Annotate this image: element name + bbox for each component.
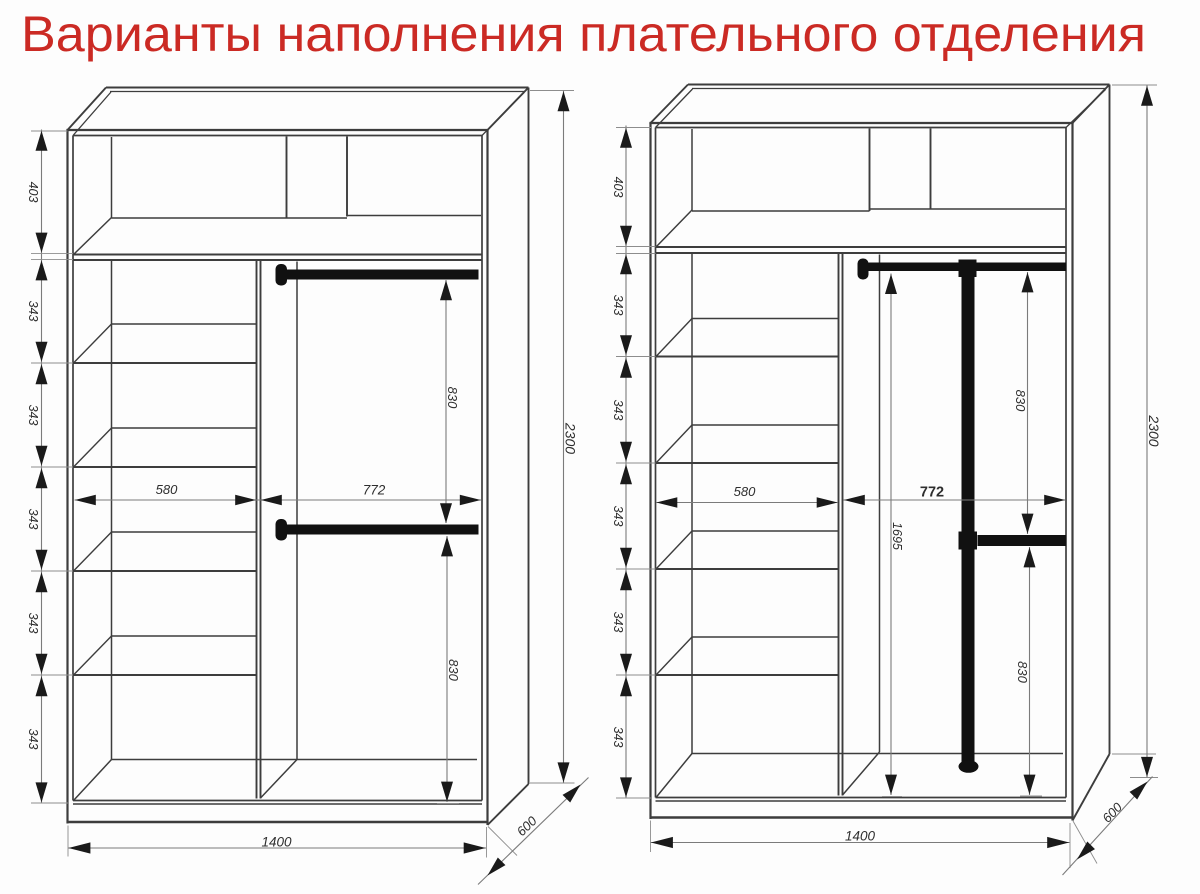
svg-text:1695: 1695 [890, 522, 904, 550]
svg-text:580: 580 [156, 482, 178, 497]
svg-text:1400: 1400 [845, 828, 876, 843]
svg-text:Варианты наполнения плательног: Варианты наполнения плательного отделени… [21, 6, 1146, 62]
svg-text:772: 772 [920, 485, 944, 501]
svg-text:343: 343 [611, 727, 625, 748]
svg-text:403: 403 [611, 177, 625, 198]
svg-text:343: 343 [26, 729, 40, 750]
svg-text:343: 343 [611, 400, 625, 421]
svg-text:580: 580 [734, 484, 756, 499]
svg-text:343: 343 [26, 509, 40, 530]
svg-text:343: 343 [26, 613, 40, 634]
svg-text:343: 343 [611, 506, 625, 527]
svg-text:343: 343 [611, 295, 625, 316]
svg-text:600: 600 [514, 813, 541, 839]
svg-text:343: 343 [611, 612, 625, 633]
svg-text:343: 343 [26, 405, 40, 426]
svg-text:830: 830 [446, 659, 461, 681]
svg-text:2300: 2300 [1146, 414, 1162, 446]
svg-text:1400: 1400 [261, 834, 292, 849]
svg-text:830: 830 [1013, 390, 1028, 412]
svg-text:343: 343 [26, 301, 40, 322]
svg-text:830: 830 [1015, 661, 1030, 683]
svg-text:830: 830 [445, 387, 460, 409]
svg-text:403: 403 [26, 182, 40, 203]
svg-text:772: 772 [363, 482, 386, 497]
svg-text:600: 600 [1099, 799, 1125, 826]
svg-text:2300: 2300 [562, 422, 578, 454]
